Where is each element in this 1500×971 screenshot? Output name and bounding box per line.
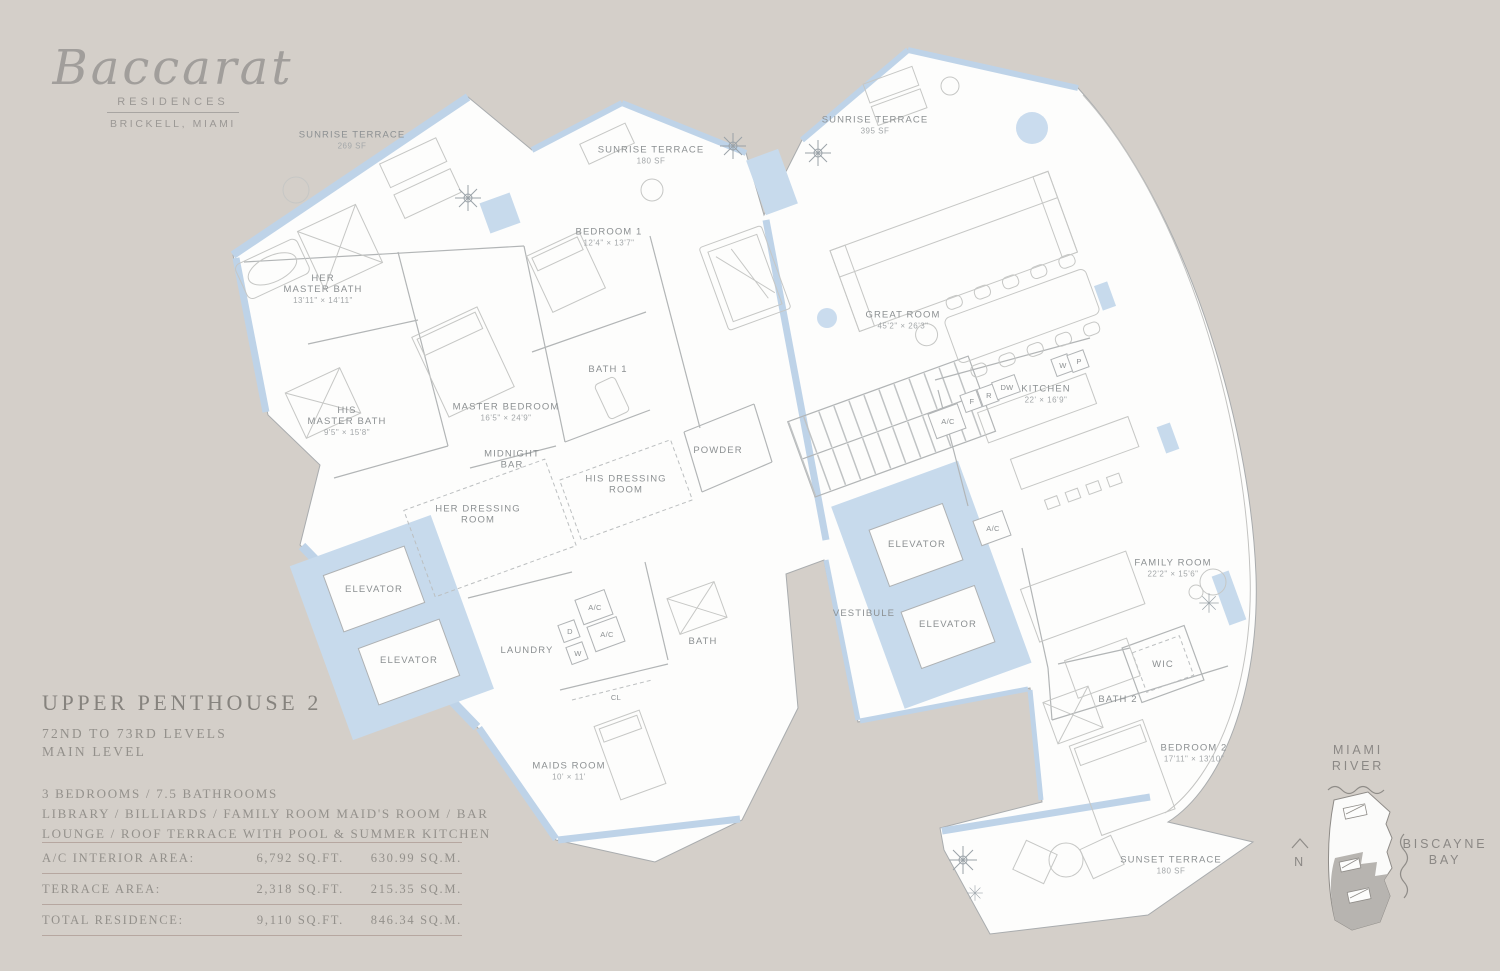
- terrace-pool-dot: [1016, 112, 1048, 144]
- utility-label: W: [574, 649, 582, 658]
- room-label: ELEVATOR: [919, 619, 977, 630]
- keyplan-label: MIAMIRIVER: [1332, 743, 1384, 773]
- utility-label: F: [970, 397, 975, 406]
- area-label: TOTAL RESIDENCE:: [42, 913, 209, 928]
- utility-label: A/C: [600, 630, 614, 639]
- table-row: A/C INTERIOR AREA: 6,792 SQ.FT. 630.99 S…: [42, 842, 462, 873]
- utility-label: D: [567, 627, 573, 636]
- room-label: BEDROOM 112'4" × 13'7": [576, 227, 643, 248]
- room-label: ELEVATOR: [380, 655, 438, 666]
- room-label: BATH 2: [1098, 694, 1137, 705]
- north-arrow-icon: [1292, 839, 1308, 848]
- brand-type: RESIDENCES: [107, 96, 239, 113]
- room-label: ELEVATOR: [888, 539, 946, 550]
- room-label: VESTIBULE: [833, 608, 895, 619]
- area-sqm: 630.99 SQ.M.: [344, 851, 462, 866]
- room-label: BEDROOM 217'11" × 13'10": [1161, 743, 1228, 764]
- utility-label: A/C: [941, 417, 955, 426]
- area-sqft: 6,792 SQ.FT.: [209, 851, 344, 866]
- area-sqft: 2,318 SQ.FT.: [209, 882, 344, 897]
- brand-logo: Baccarat RESIDENCES BRICKELL, MIAMI: [48, 44, 298, 130]
- brand-name: Baccarat: [48, 44, 298, 92]
- area-sqm: 846.34 SQ.M.: [344, 913, 462, 928]
- room-label: BATH 1: [588, 364, 627, 375]
- area-sqft: 9,110 SQ.FT.: [209, 913, 344, 928]
- table-row: TOTAL RESIDENCE: 9,110 SQ.FT. 846.34 SQ.…: [42, 904, 462, 936]
- room-label: ELEVATOR: [345, 584, 403, 595]
- utility-label: CL: [611, 693, 621, 702]
- unit-levels: 72ND TO 73RD LEVELS MAIN LEVEL: [42, 725, 491, 761]
- room-label: WIC: [1152, 659, 1174, 670]
- brand-location: BRICKELL, MIAMI: [48, 118, 298, 130]
- area-sqm: 215.35 SQ.M.: [344, 882, 462, 897]
- area-label: A/C INTERIOR AREA:: [42, 851, 209, 866]
- river-wave-icon: [1328, 787, 1384, 794]
- utility-label: R: [986, 391, 992, 400]
- unit-levels-line: 72ND TO 73RD LEVELS: [42, 725, 491, 743]
- table-row: TERRACE AREA: 2,318 SQ.FT. 215.35 SQ.M.: [42, 873, 462, 904]
- terrace-table: [283, 177, 309, 203]
- unit-title: UPPER PENTHOUSE 2: [42, 690, 491, 716]
- room-label: LAUNDRY: [501, 645, 554, 656]
- utility-label: W: [1059, 361, 1067, 370]
- areas-table: A/C INTERIOR AREA: 6,792 SQ.FT. 630.99 S…: [42, 842, 462, 936]
- star-icon: [949, 846, 977, 874]
- utility-label: A/C: [986, 524, 1000, 533]
- keyplan-label: N: [1294, 855, 1306, 869]
- utility-label: A/C: [588, 603, 602, 612]
- utility-label: P: [1076, 357, 1081, 366]
- unit-level-line: MAIN LEVEL: [42, 743, 491, 761]
- utility-label: DW: [1000, 383, 1014, 392]
- floorplan-page: { "colors":{ "background":"#d4cfc9","pla…: [0, 0, 1500, 971]
- keyplan-label: BISCAYNEBAY: [1403, 837, 1488, 867]
- room-label: KITCHEN22' × 16'9": [1021, 384, 1070, 405]
- area-label: TERRACE AREA:: [42, 882, 209, 897]
- room-label: BATH: [688, 636, 717, 647]
- great-room-dot: [817, 308, 837, 328]
- unit-info: UPPER PENTHOUSE 2 72ND TO 73RD LEVELS MA…: [42, 690, 491, 844]
- room-label: POWDER: [693, 445, 742, 456]
- keyplan: MIAMIRIVERBISCAYNEBAYN: [1292, 743, 1487, 930]
- unit-features: 3 BEDROOMS / 7.5 BATHROOMS LIBRARY / BIL…: [42, 784, 491, 844]
